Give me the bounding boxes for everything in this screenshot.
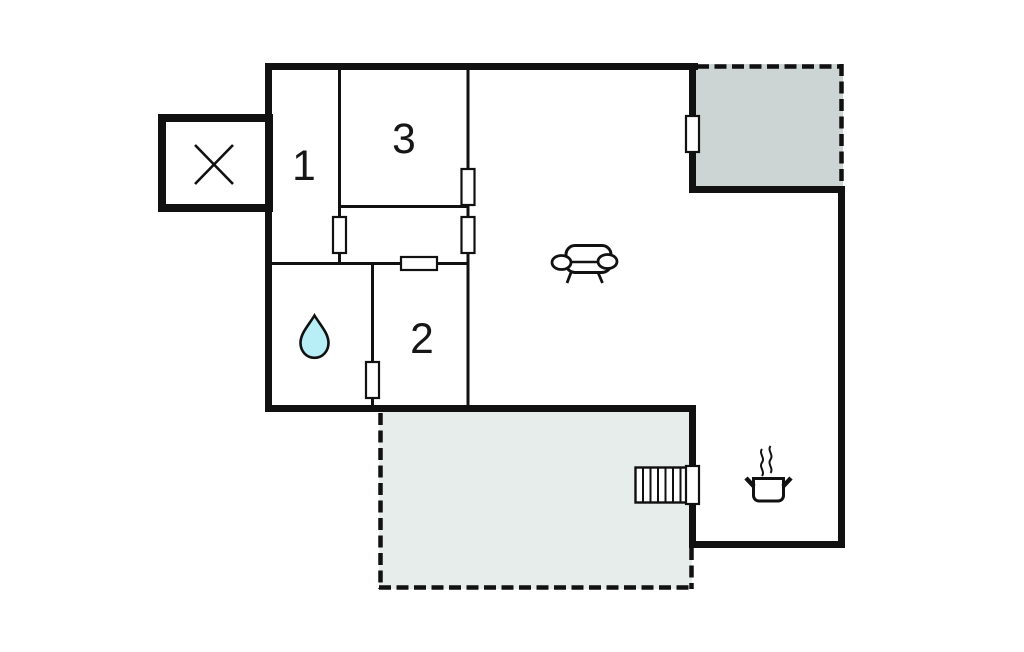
wall-left <box>265 63 272 412</box>
annex-box <box>162 118 269 208</box>
room-3-label: 3 <box>392 116 416 163</box>
door-terrace-stairs <box>686 466 699 504</box>
door-room3 <box>462 169 475 205</box>
door-hall-living <box>462 217 475 253</box>
wall-top <box>265 63 698 70</box>
stairs-icon <box>636 468 689 503</box>
wall-bottom-main <box>265 405 696 412</box>
door-room2 <box>401 257 437 270</box>
terrace-top-right <box>696 64 843 188</box>
floor-plan-canvas: 1 2 3 <box>0 0 1024 652</box>
room-1-label: 1 <box>292 143 316 190</box>
door-room1 <box>333 217 346 253</box>
wall-kitchen-bottom <box>689 541 845 548</box>
terrace-top-right-fill <box>696 64 843 188</box>
wall-terrace-bottom <box>689 186 845 193</box>
floor-plan: 1 2 3 <box>0 0 1024 652</box>
wall-right <box>838 186 845 548</box>
room-2-label: 2 <box>410 316 434 363</box>
door-bathroom <box>366 362 379 398</box>
window-terrace-wall <box>686 116 699 152</box>
